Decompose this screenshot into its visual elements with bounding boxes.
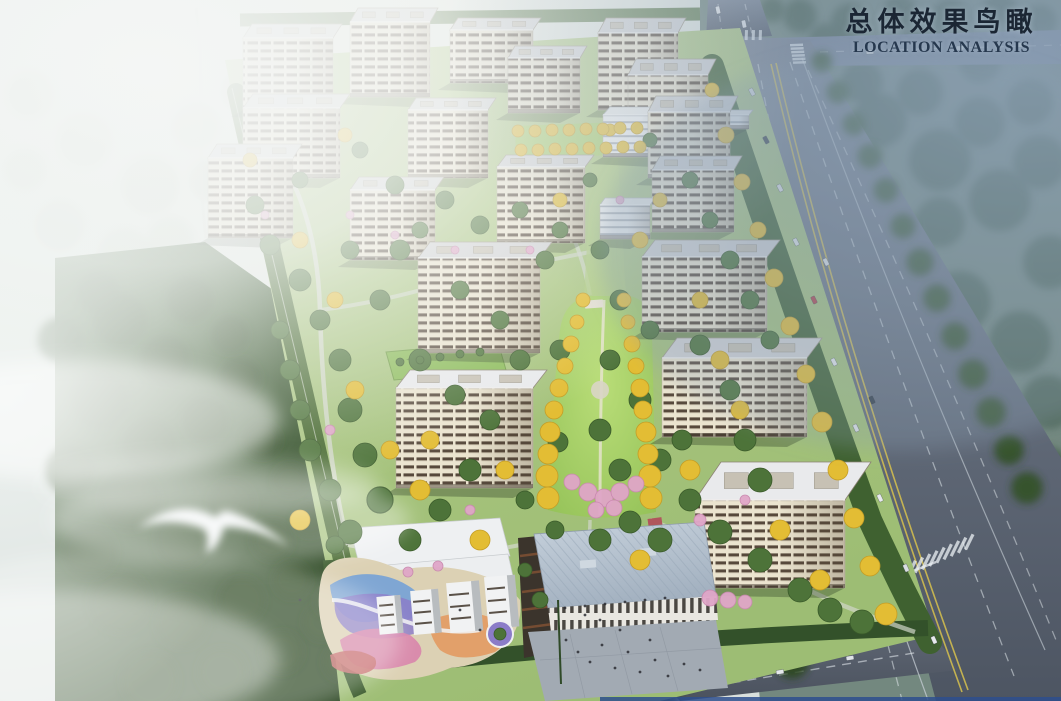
aerial-rendering [0, 0, 1061, 701]
rendering-canvas: 总体效果鸟瞰 LOCATION ANALYSIS [0, 0, 1061, 701]
mist-streak [40, 455, 380, 515]
image-border-strip [600, 697, 1061, 701]
atmosphere [0, 0, 1061, 701]
